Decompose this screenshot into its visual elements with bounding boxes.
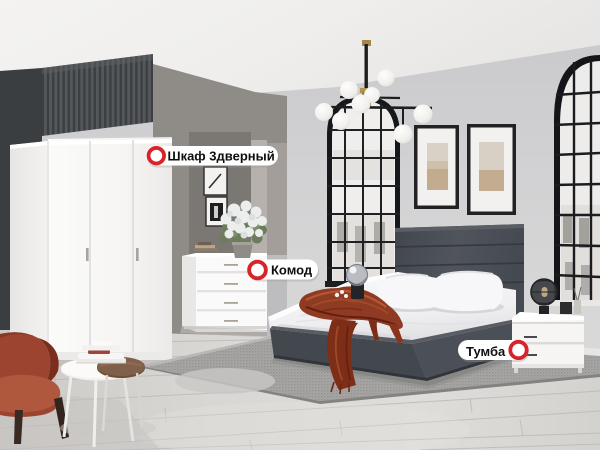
svg-text:Комод: Комод [271, 263, 313, 278]
svg-text:Шкаф 3дверный: Шкаф 3дверный [168, 149, 275, 164]
svg-text:Тумба: Тумба [466, 344, 506, 359]
